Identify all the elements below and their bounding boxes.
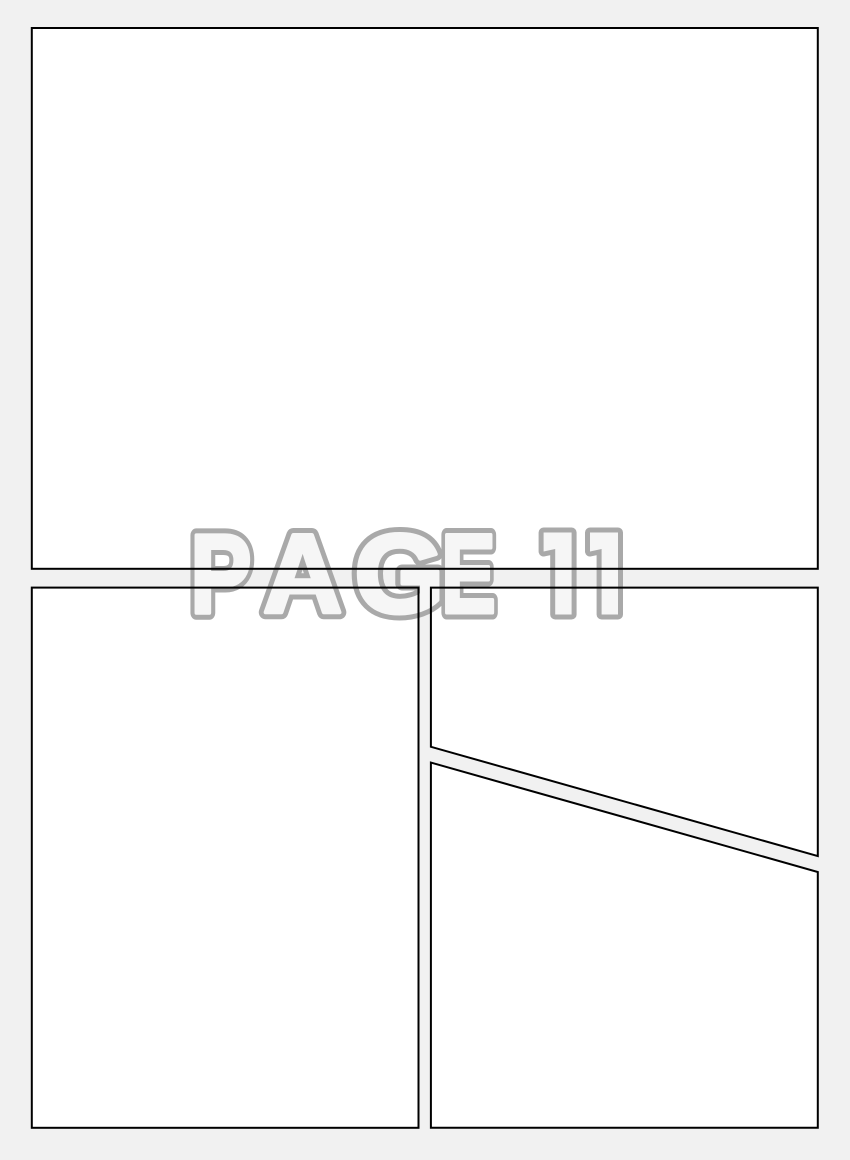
svg-text:P: P: [190, 511, 252, 637]
svg-text:A: A: [263, 510, 343, 636]
svg-text:E: E: [441, 511, 496, 637]
